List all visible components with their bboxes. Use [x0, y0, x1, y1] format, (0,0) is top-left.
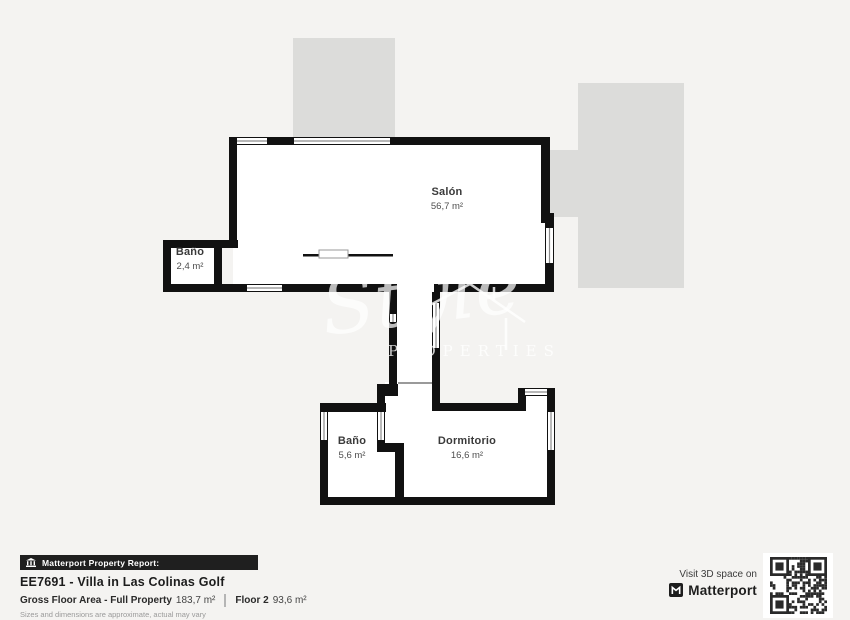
- floor-value: 93,6 m²: [273, 595, 307, 606]
- matterport-brand-text: Matterport: [688, 583, 757, 598]
- report-badge: Matterport Property Report:: [20, 555, 258, 570]
- building-icon: [26, 558, 36, 567]
- corridor-floor: [395, 288, 434, 386]
- floor-plan: [0, 0, 850, 620]
- watermark-house-icon: [430, 284, 525, 350]
- door-threshold: [398, 382, 432, 384]
- room-bano-small-floor: [167, 244, 218, 286]
- meta-divider: [224, 594, 226, 607]
- room-salon-floor: [233, 141, 547, 288]
- visit-3d-cta[interactable]: Visit 3D space on Matterport: [668, 569, 757, 598]
- matterport-logo-icon: [668, 582, 684, 598]
- qr-code: [763, 553, 833, 618]
- qr-code-modules: [770, 557, 827, 614]
- property-meta: Gross Floor Area - Full Property 183,7 m…: [20, 594, 307, 607]
- gross-floor-area-value: 183,7 m²: [176, 595, 215, 606]
- visit-3d-text: Visit 3D space on: [668, 569, 757, 580]
- report-badge-label: Matterport Property Report:: [42, 558, 159, 568]
- property-report-page: Style PROPERTIES Salón 56,7 m² Baño 2,4 …: [0, 0, 850, 620]
- gross-floor-area-label: Gross Floor Area - Full Property: [20, 595, 172, 606]
- disclaimer-text: Sizes and dimensions are approximate, ac…: [20, 610, 206, 619]
- room-floors: [167, 141, 549, 499]
- property-title: EE7691 - Villa in Las Colinas Golf: [20, 575, 225, 589]
- matterport-brand[interactable]: Matterport: [668, 582, 757, 598]
- floor-label: Floor 2: [235, 595, 268, 606]
